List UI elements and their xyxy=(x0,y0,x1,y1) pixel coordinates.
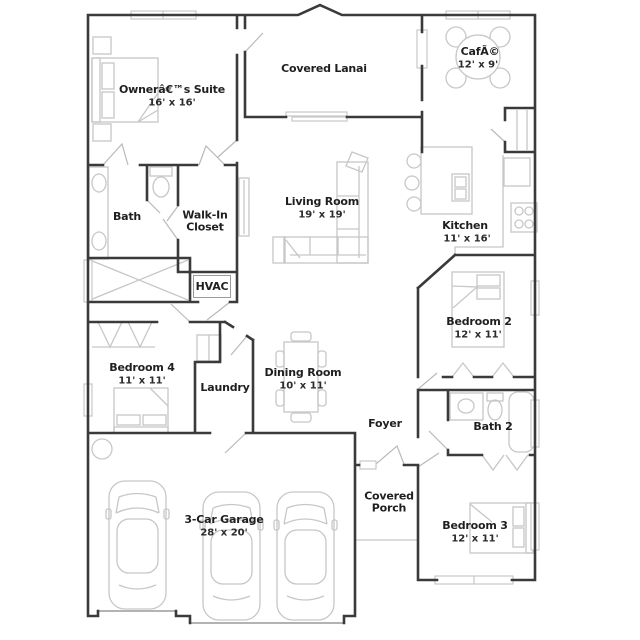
room-label-hvac: HVAC xyxy=(196,281,229,293)
lanai-door xyxy=(245,33,263,52)
room-label-bath-2: Bath 2 xyxy=(473,421,512,433)
garage-entry-door xyxy=(225,433,246,453)
car-icon xyxy=(200,492,263,620)
hall-door xyxy=(207,302,230,320)
bedroom4-door xyxy=(171,304,190,322)
floor-plan-page: Ownerâ€™s Suite 16' x 16' Covered Lanai … xyxy=(0,0,640,640)
bath-door xyxy=(103,144,128,165)
room-dims-living-room: 19' x 19' xyxy=(298,210,345,221)
suite-entry-door xyxy=(218,140,237,157)
room-label-garage: 3-Car Garage xyxy=(184,514,263,526)
bath2-door xyxy=(429,431,448,450)
bedroom3-door xyxy=(418,453,439,467)
room-dims-garage: 28' x 20' xyxy=(200,528,247,539)
room-label-walk-in-closet: Walk-In Closet xyxy=(174,210,236,235)
sliding-door xyxy=(292,117,347,121)
room-dims-bedroom-2: 12' x 11' xyxy=(454,330,501,341)
bedroom4-closet-rod xyxy=(92,322,155,347)
room-label-foyer: Foyer xyxy=(368,418,402,430)
front-door xyxy=(376,446,404,464)
toilet-door xyxy=(147,200,160,213)
room-label-owners-suite: Ownerâ€™s Suite xyxy=(119,84,225,96)
bedroom4-bed-icon xyxy=(114,388,168,433)
bedroom3-closet-doors xyxy=(482,455,528,470)
room-label-covered-porch: Covered Porch xyxy=(358,491,420,516)
room-dims-owners-suite: 16' x 16' xyxy=(148,98,195,109)
front-door-threshold xyxy=(360,461,376,469)
washer-dryer-icon xyxy=(197,335,221,361)
bedroom2-closet-doors xyxy=(452,363,514,377)
room-label-kitchen: Kitchen xyxy=(442,220,488,232)
room-dims-bedroom-4: 11' x 11' xyxy=(118,376,165,387)
tv-niche xyxy=(239,178,249,236)
pantry-door xyxy=(491,129,505,142)
room-label-bath: Bath xyxy=(113,211,141,223)
room-label-laundry: Laundry xyxy=(200,382,249,394)
room-dims-dining-room: 10' x 11' xyxy=(279,381,326,392)
room-dims-cafe: 12' x 9' xyxy=(458,60,498,71)
bedroom2-door xyxy=(417,373,437,390)
car-icon xyxy=(274,492,337,620)
kitchen-island-icon xyxy=(405,147,472,214)
floorplan-drawing xyxy=(0,0,640,640)
water-heater-icon xyxy=(92,439,112,459)
room-label-living-room: Living Room xyxy=(285,196,359,208)
room-dims-bedroom-3: 12' x 11' xyxy=(451,534,498,545)
laundry-door xyxy=(231,336,247,355)
room-dims-kitchen: 11' x 16' xyxy=(443,234,490,245)
window xyxy=(417,30,427,68)
room-label-dining-room: Dining Room xyxy=(265,367,342,379)
crossed-box xyxy=(90,260,188,300)
room-label-bedroom-4: Bedroom 4 xyxy=(109,362,174,374)
suite-closet-door xyxy=(199,146,225,165)
room-label-covered-lanai: Covered Lanai xyxy=(281,63,367,75)
room-label-bedroom-2: Bedroom 2 xyxy=(446,316,511,328)
garage-doors-layer xyxy=(98,611,344,623)
room-label-bedroom-3: Bedroom 3 xyxy=(442,520,507,532)
sliding-door xyxy=(286,112,347,116)
car-icon xyxy=(106,481,169,609)
room-label-cafe: CafÃ© xyxy=(461,46,500,58)
